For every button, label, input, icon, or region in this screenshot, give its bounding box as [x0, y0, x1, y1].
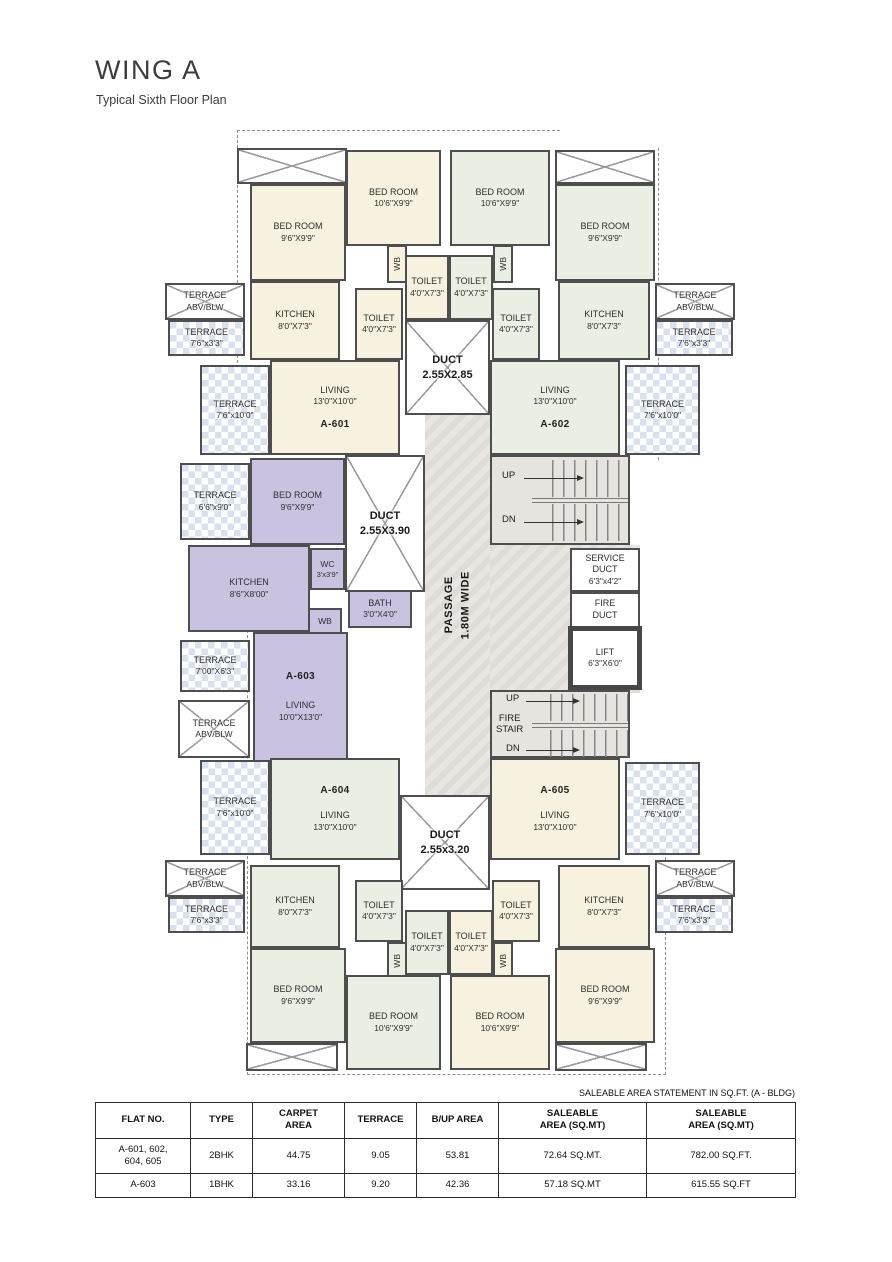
room-terrace: TERRACE 7'6"x10'0"	[625, 365, 700, 455]
room-toilet: TOILET 4'0"X7'3"	[492, 288, 540, 360]
duct-label: DUCT	[430, 828, 461, 843]
duct-bottom: DUCT 2.55x3.20	[400, 795, 490, 890]
room-toilet: TOILET 4'0"X7'3"	[405, 910, 449, 975]
room-dims: ABV/BLW	[186, 879, 223, 890]
room-bedroom: BED ROOM 10'6"X9'9"	[450, 975, 550, 1070]
cell-saleable-sqmt: 72.64 SQ.MT.	[499, 1138, 647, 1174]
room-label: TOILET	[455, 931, 486, 943]
passage-corridor: PASSAGE 1.80M WIDE	[425, 415, 490, 795]
room-label: TOILET	[411, 931, 442, 943]
fire-staircase: UP FIRE STAIR DN	[490, 690, 630, 758]
room-label: TERRACE	[672, 904, 715, 916]
room-bedroom: BED ROOM 9'6"X9'9"	[555, 184, 655, 281]
duct-dims: 2.55x3.20	[421, 843, 470, 858]
unit-label-a601: A-601	[320, 419, 349, 430]
terrace-box-bottom-right	[555, 1043, 647, 1071]
room-dims: 7'6"x10'0"	[644, 809, 681, 820]
cell-flat-no: A-603	[96, 1174, 191, 1197]
duct-top: DUCT 2.55X2.85	[405, 320, 490, 415]
room-terrace-abv-blw: TERRACE ABV/BLW	[165, 860, 245, 897]
room-dims: 13'0"X10'0"	[313, 822, 356, 833]
room-dims: 8'0"X7'3"	[587, 907, 621, 918]
room-dims: 10'6"X9'9"	[481, 1023, 520, 1034]
room-dims: 9'6"X9'9"	[281, 996, 315, 1007]
room-bedroom: BED ROOM 10'6"X9'9"	[450, 150, 550, 246]
col-bup-area: B/UP AREA	[417, 1103, 499, 1139]
area-table: FLAT NO. TYPE CARPET AREA TERRACE B/UP A…	[95, 1102, 796, 1198]
room-bedroom: BED ROOM 9'6"X9'9"	[555, 948, 655, 1043]
room-dims: 4'0"X7'3"	[362, 324, 396, 335]
room-label: TERRACE	[672, 327, 715, 339]
up-arrow	[526, 701, 578, 702]
room-kitchen: KITCHEN 8'0"X7'3"	[558, 865, 650, 948]
cell-saleable-sqft: 782.00 SQ.FT.	[647, 1138, 796, 1174]
cell-bup-area: 53.81	[417, 1138, 499, 1174]
room-toilet: TOILET 4'0"X7'3"	[449, 255, 493, 320]
room-dims: 7'6"x3'3"	[190, 915, 222, 926]
room-label: BED ROOM	[273, 490, 322, 502]
stair-landing	[532, 498, 628, 503]
room-label: TERRACE	[185, 904, 228, 916]
room-label: BATH	[368, 598, 391, 610]
col-terrace: TERRACE	[345, 1103, 417, 1139]
cell-carpet-area: 44.75	[253, 1138, 345, 1174]
room-dims: 13'0"X10'0"	[533, 396, 576, 407]
room-kitchen: KITCHEN 8'0"X7'3"	[558, 281, 650, 360]
cell-saleable-sqft: 615.55 SQ.FT	[647, 1174, 796, 1197]
room-dims: 7'00"X6'3"	[196, 666, 235, 677]
room-dims: 8'0"X7'3"	[278, 907, 312, 918]
room-dims: 10'6"X9'9"	[481, 198, 520, 209]
room-dims: 4'0"X7'3"	[454, 288, 488, 299]
room-dims: 7'6"x3'3"	[678, 338, 710, 349]
room-dims: 7'6"x10'0"	[644, 410, 681, 421]
table-note: SALEABLE AREA STATEMENT IN SQ.FT. (A - B…	[95, 1088, 795, 1098]
unit-label-a602: A-602	[540, 419, 569, 430]
room-label: TERRACE	[185, 327, 228, 339]
room-dims: ABV/BLW	[195, 729, 232, 740]
cell-type: 1BHK	[191, 1174, 253, 1197]
room-label: KITCHEN	[584, 309, 624, 321]
room-dims: 8'0"X7'3"	[587, 321, 621, 332]
room-dims: 9'6"X9'9"	[588, 996, 622, 1007]
lift: LIFT 6'3"X6'0"	[568, 626, 642, 690]
duct-mid: DUCT 2.55X3.90	[345, 455, 425, 592]
room-toilet: TOILET 4'0"X7'3"	[355, 288, 403, 360]
room-wb: WB	[493, 245, 513, 283]
room-label: TERRACE	[192, 718, 235, 730]
room-bedroom: BED ROOM 9'6"X9'9"	[250, 184, 346, 281]
room-label: KITCHEN	[229, 577, 269, 589]
unit-label-a604: A-604	[320, 785, 349, 796]
room-living-a604: A-604 LIVING 13'0"X10'0"	[270, 758, 400, 860]
room-dims: 6'6"x9'0"	[199, 502, 231, 513]
room-wc: WC 3'x3'9"	[310, 548, 345, 590]
room-label: TOILET	[411, 276, 442, 288]
room-dims: ABV/BLW	[676, 879, 713, 890]
cell-bup-area: 42.36	[417, 1174, 499, 1197]
room-label: BED ROOM	[475, 187, 524, 199]
room-dims: 7'6"x3'3"	[678, 915, 710, 926]
room-label: LIVING	[540, 385, 570, 397]
room-bedroom: BED ROOM 9'6"X9'9"	[250, 458, 345, 545]
room-terrace-abv-blw: TERRACE ABV/BLW	[178, 700, 250, 758]
room-terrace: TERRACE 7'6"x10'0"	[200, 365, 270, 455]
room-label: WB	[498, 257, 508, 271]
room-dims: 4'0"X7'3"	[362, 911, 396, 922]
room-label: BED ROOM	[273, 221, 322, 233]
room-terrace: TERRACE 7'6"x3'3"	[655, 897, 733, 933]
room-label: WB	[498, 954, 508, 968]
service-duct: SERVICE DUCT 6'3"x4'2"	[570, 548, 640, 592]
table-row: A-601, 602, 604, 605 2BHK 44.75 9.05 53.…	[96, 1138, 796, 1174]
room-terrace: TERRACE 7'6"x10'0"	[625, 762, 700, 855]
room-label: TERRACE	[193, 655, 236, 667]
room-dims: 10'6"X9'9"	[374, 1023, 413, 1034]
room-dims: 10'0"X13'0"	[279, 712, 322, 723]
room-dims: 7'6"x10'0"	[216, 410, 253, 421]
room-dims: 4'0"X7'3"	[454, 943, 488, 954]
room-dims: 8'6"X8'00"	[230, 589, 269, 600]
room-label: TOILET	[363, 900, 394, 912]
room-dims: ABV/BLW	[676, 302, 713, 313]
col-saleable-sqmt: SALEABLE AREA (SQ.MT)	[499, 1103, 647, 1139]
room-label: BED ROOM	[580, 221, 629, 233]
room-label: TERRACE	[673, 867, 716, 879]
room-label: TOILET	[500, 900, 531, 912]
room-dims: 4'0"X7'3"	[410, 288, 444, 299]
room-dims: ABV/BLW	[186, 302, 223, 313]
room-dims: 13'0"X10'0"	[313, 396, 356, 407]
room-dims: 9'6"X9'9"	[588, 233, 622, 244]
dashed-boundary	[247, 1074, 666, 1075]
room-wb: WB	[387, 245, 407, 283]
room-label: LIVING	[320, 810, 350, 822]
room-terrace-abv-blw: TERRACE ABV/BLW	[655, 860, 735, 897]
page-title: WING A	[95, 55, 202, 86]
unit-label-a605: A-605	[540, 785, 569, 796]
room-label: KITCHEN	[584, 895, 624, 907]
room-label: LIVING	[540, 810, 570, 822]
col-carpet-area: CARPET AREA	[253, 1103, 345, 1139]
room-dims: 6'3"X6'0"	[588, 658, 622, 669]
room-terrace: TERRACE 7'6"x10'0"	[200, 760, 270, 855]
room-living-a602: LIVING 13'0"X10'0" A-602	[490, 360, 620, 455]
fire-stair-label: FIRE STAIR	[496, 714, 523, 736]
stair-up-label: UP	[502, 471, 515, 482]
cell-type: 2BHK	[191, 1138, 253, 1174]
main-staircase: UP DN	[490, 455, 630, 545]
room-dims: 3'x3'9"	[317, 570, 339, 580]
room-label: WB	[318, 616, 332, 627]
page-subtitle: Typical Sixth Floor Plan	[96, 93, 227, 107]
table-header-row: FLAT NO. TYPE CARPET AREA TERRACE B/UP A…	[96, 1103, 796, 1139]
page: WING A Typical Sixth Floor Plan PASSAGE …	[0, 0, 892, 1262]
room-living-a603: A-603 LIVING 10'0"X13'0"	[253, 632, 348, 762]
stair-landing	[532, 723, 628, 728]
stair-up-label: UP	[506, 694, 519, 705]
col-flat-no: FLAT NO.	[96, 1103, 191, 1139]
duct-label: DUCT	[432, 353, 463, 368]
room-kitchen: KITCHEN 8'6"X8'00"	[188, 545, 310, 632]
room-label: WB	[392, 257, 402, 271]
room-terrace: TERRACE 6'6"x9'0"	[180, 463, 250, 540]
room-terrace-abv-blw: TERRACE ABV/BLW	[165, 283, 245, 320]
room-toilet: TOILET 4'0"X7'3"	[449, 910, 493, 975]
room-label: TERRACE	[183, 867, 226, 879]
cell-flat-no: A-601, 602, 604, 605	[96, 1138, 191, 1174]
table-row: A-603 1BHK 33.16 9.20 42.36 57.18 SQ.MT …	[96, 1174, 796, 1197]
room-label: TERRACE	[673, 290, 716, 302]
stair-treads	[550, 694, 628, 721]
stair-dn-label: DN	[506, 744, 520, 755]
room-label: LIVING	[286, 700, 316, 712]
room-dims: 9'6"X9'9"	[281, 233, 315, 244]
room-terrace-abv-blw: TERRACE ABV/BLW	[655, 283, 735, 320]
room-label: KITCHEN	[275, 309, 315, 321]
room-dims: 8'0"X7'3"	[278, 321, 312, 332]
room-label: TERRACE	[213, 796, 256, 808]
room-label: BED ROOM	[369, 1011, 418, 1023]
room-label: TERRACE	[183, 290, 226, 302]
room-label: BED ROOM	[369, 187, 418, 199]
up-arrow	[524, 478, 582, 479]
room-toilet: TOILET 4'0"X7'3"	[405, 255, 449, 320]
room-bedroom: BED ROOM 9'6"X9'9"	[250, 948, 346, 1043]
cell-terrace: 9.05	[345, 1138, 417, 1174]
room-living-a605: A-605 LIVING 13'0"X10'0"	[490, 758, 620, 860]
room-label: TOILET	[500, 313, 531, 325]
floor-plan: PASSAGE 1.80M WIDE BED ROOM 9'6"X9'9" BE…	[150, 130, 765, 1075]
room-dims: 9'6"X9'9"	[281, 502, 315, 513]
room-dims: 6'3"x4'2"	[589, 576, 621, 587]
duct-dims: 2.55X2.85	[422, 368, 472, 383]
terrace-box-bottom-left	[246, 1043, 338, 1071]
terrace-box-top-right	[555, 150, 655, 184]
room-label: KITCHEN	[275, 895, 315, 907]
room-bath: BATH 3'0"X4'0"	[348, 590, 412, 628]
room-dims: 7'6"x10'0"	[216, 808, 253, 819]
room-dims: 7'6"x3'3"	[190, 338, 222, 349]
room-living-a601: LIVING 13'0"X10'0" A-601	[270, 360, 400, 455]
stair-treads	[550, 730, 628, 757]
fire-duct: FIRE DUCT	[570, 592, 640, 628]
room-dims: 4'0"X7'3"	[499, 911, 533, 922]
cell-saleable-sqmt: 57.18 SQ.MT	[499, 1174, 647, 1197]
dn-arrow	[526, 750, 578, 751]
room-terrace: TERRACE 7'6"x3'3"	[655, 320, 733, 356]
room-label: LIFT	[596, 647, 615, 659]
room-label: BED ROOM	[580, 984, 629, 996]
room-label: TERRACE	[641, 797, 684, 809]
room-bedroom: BED ROOM 10'6"X9'9"	[346, 975, 441, 1070]
room-bedroom: BED ROOM 10'6"X9'9"	[346, 150, 441, 246]
room-dims: 13'0"X10'0"	[533, 822, 576, 833]
room-dims: 4'0"X7'3"	[410, 943, 444, 954]
terrace-box-top-left	[237, 148, 347, 184]
room-terrace: TERRACE 7'00"X6'3"	[180, 640, 250, 692]
room-label: WB	[392, 954, 402, 968]
room-label: BED ROOM	[273, 984, 322, 996]
room-kitchen: KITCHEN 8'0"X7'3"	[250, 865, 340, 948]
passage-label: PASSAGE 1.80M WIDE	[441, 571, 474, 639]
room-label: TOILET	[455, 276, 486, 288]
room-dims: 4'0"X7'3"	[499, 324, 533, 335]
cell-carpet-area: 33.16	[253, 1174, 345, 1197]
room-terrace: TERRACE 7'6"x3'3"	[168, 320, 245, 356]
room-label: SERVICE DUCT	[585, 553, 624, 576]
cell-terrace: 9.20	[345, 1174, 417, 1197]
col-type: TYPE	[191, 1103, 253, 1139]
dashed-boundary	[237, 130, 560, 131]
room-label: BED ROOM	[475, 1011, 524, 1023]
room-label: TOILET	[363, 313, 394, 325]
room-toilet: TOILET 4'0"X7'3"	[492, 880, 540, 942]
col-saleable-sqft: SALEABLE AREA (SQ.MT)	[647, 1103, 796, 1139]
room-label: WC	[320, 559, 334, 570]
duct-label: DUCT	[370, 509, 401, 524]
dn-arrow	[524, 522, 582, 523]
room-terrace: TERRACE 7'6"x3'3"	[168, 897, 245, 933]
room-label: LIVING	[320, 385, 350, 397]
room-label: FIRE DUCT	[593, 598, 618, 621]
room-label: TERRACE	[213, 399, 256, 411]
room-label: TERRACE	[193, 490, 236, 502]
duct-dims: 2.55X3.90	[360, 524, 410, 539]
unit-label-a603: A-603	[286, 671, 315, 682]
room-toilet: TOILET 4'0"X7'3"	[355, 880, 403, 942]
stair-dn-label: DN	[502, 515, 516, 526]
room-dims: 10'6"X9'9"	[374, 198, 413, 209]
room-dims: 3'0"X4'0"	[363, 609, 397, 620]
room-kitchen: KITCHEN 8'0"X7'3"	[250, 281, 340, 360]
room-label: TERRACE	[641, 399, 684, 411]
